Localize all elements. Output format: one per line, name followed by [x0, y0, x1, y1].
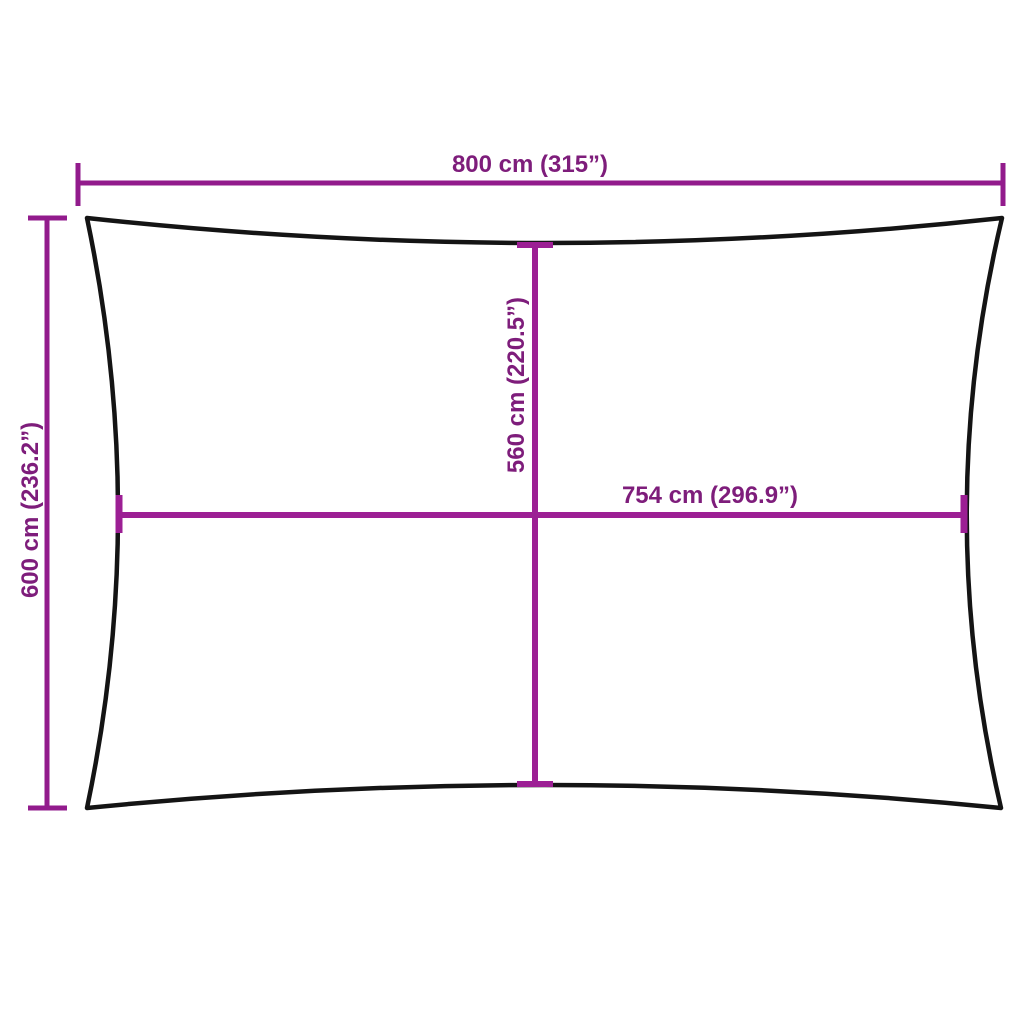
- dimension-top-width: 800 cm (315”): [78, 151, 1003, 206]
- dimension-inner-width: 754 cm (296.9”): [119, 482, 964, 533]
- dimension-label-top-width: 800 cm (315”): [452, 151, 608, 178]
- dimension-label-inner-height: 560 cm (220.5”): [503, 297, 530, 473]
- dimension-diagram: 800 cm (315”) 600 cm (236.2”) 560 cm (22…: [0, 0, 1024, 1024]
- dimension-label-inner-width: 754 cm (296.9”): [622, 482, 798, 509]
- diagram-canvas: 800 cm (315”) 600 cm (236.2”) 560 cm (22…: [0, 0, 1024, 1024]
- dimension-left-height: 600 cm (236.2”): [17, 218, 67, 808]
- dimension-label-left-height: 600 cm (236.2”): [17, 422, 44, 598]
